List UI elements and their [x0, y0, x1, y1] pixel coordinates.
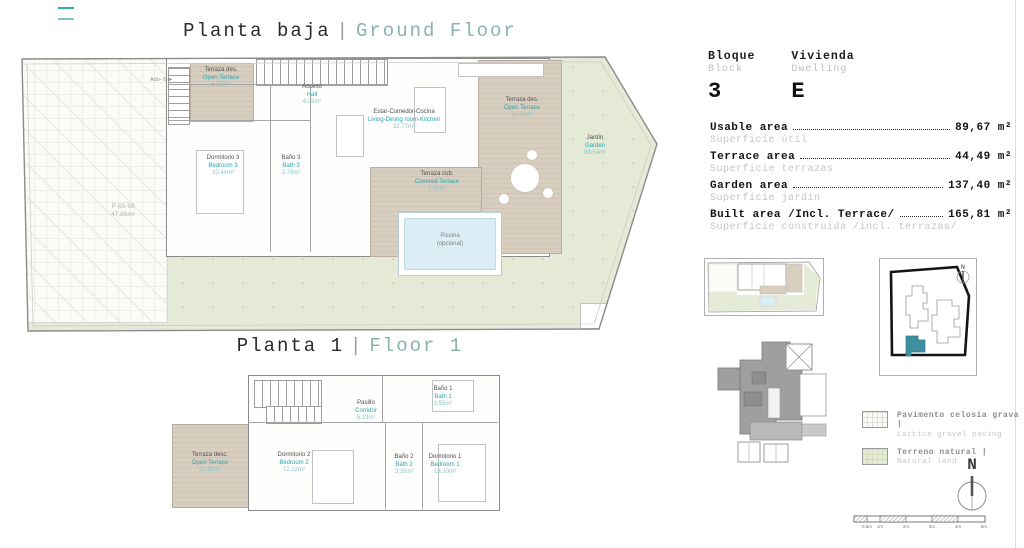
compass-north-label: N — [946, 458, 998, 472]
area-unit: m² — [998, 209, 1012, 221]
title-separator: | — [344, 335, 369, 357]
scale-tick-label: 5m — [981, 524, 988, 529]
scale-tick-label: 0.5m — [862, 524, 872, 529]
room-label-corridor: Pasillo Corridor 5.13m² — [341, 400, 391, 423]
dotted-leader — [793, 129, 950, 130]
floor1-title-en: Floor 1 — [369, 335, 463, 357]
scale-tick-label: 2m — [903, 524, 910, 529]
logo-mark — [58, 7, 74, 20]
vivienda-info: Vivienda Dwelling E — [791, 50, 854, 104]
area-sublabel: Superficie terrazas — [710, 164, 1012, 175]
room-label-terrace-top-left: Terraza des. Open Terrace 5.58m² — [183, 67, 259, 90]
vivienda-value: E — [791, 79, 854, 104]
ground-floor-title-en: Ground Floor — [356, 20, 517, 42]
room-label-garden: Jardín Garden 89.54m² — [570, 135, 620, 158]
room-label-bedroom2: Dormitorio 2 Bedroom 2 12.12m² — [263, 452, 325, 475]
legend: Pavimento celosía grava | Lattice gravel… — [862, 411, 1024, 475]
room-label-bedroom3: Dormitorio 3 Bedroom 3 10.44m² — [186, 155, 260, 178]
vivienda-label-es: Vivienda — [791, 50, 854, 63]
area-sublabel: Superficie jardín — [710, 193, 1012, 204]
pool-label: Piscina (opcional) — [410, 233, 490, 248]
area-label: Garden area — [710, 180, 788, 192]
bloque-info: Bloque Block 3 — [708, 50, 755, 104]
garden-utility-box — [580, 303, 612, 329]
plan-sheet: Planta baja|Ground Floor — [0, 0, 1024, 548]
area-row-usable: Usable area 89,67 m² Superficie útil — [710, 122, 1012, 146]
title-separator: | — [331, 20, 356, 42]
scale-tick-label: 4m — [955, 524, 962, 529]
ground-floor-plan: Ado- 6 ► Terraza des. Open Terrace 5.58m… — [18, 55, 660, 333]
wall-line — [168, 120, 310, 121]
bloque-value: 3 — [708, 79, 755, 104]
floor1-title-es: Planta 1 — [237, 335, 344, 357]
floor1-title: Planta 1|Floor 1 — [160, 335, 540, 357]
room-label-hall: Acceso Hall 4.29m² — [284, 84, 340, 107]
stairs-top — [256, 59, 388, 86]
dotted-leader — [900, 216, 943, 217]
room-label-f1-terrace: Terraza desc. Open Terrace 18.59m² — [176, 452, 244, 475]
area-sublabel: Superficie construida /incl. terrazas/ — [710, 222, 1012, 233]
gravel-swatch-icon — [862, 411, 888, 428]
area-label: Usable area — [710, 122, 788, 134]
terrace-table — [510, 163, 540, 193]
dotted-leader — [800, 158, 950, 159]
floor1-plan: Terraza desc. Open Terrace 18.59m² Pasil… — [170, 372, 502, 512]
scale-tick-label: 1m — [877, 524, 884, 529]
siteplan-thumb — [704, 258, 824, 316]
area-row-garden: Garden area 137,40 m² Superficie jardín — [710, 180, 1012, 204]
key-plan: N — [879, 258, 977, 376]
room-label-covered-terrace: Terraza cub. Covered Terrace 7.48m² — [387, 171, 487, 194]
north-compass-icon: N — [946, 458, 998, 519]
natural-land-swatch-icon — [862, 448, 888, 465]
scale-tick-label: 3m — [929, 524, 936, 529]
access-note: Ado- 6 ► — [150, 77, 173, 83]
area-value: 44,49 — [955, 151, 991, 163]
legend-label-en: Lattice gravel paving — [897, 431, 1024, 439]
unit-info: Bloque Block 3 Vivienda Dwelling E — [708, 50, 855, 104]
legend-item-gravel: Pavimento celosía grava | Lattice gravel… — [862, 411, 1024, 439]
scale-bar: 0.5m 1m 2m 3m 4m 5m — [853, 515, 993, 531]
floor1-stairs-upper — [254, 380, 322, 408]
room-label-bath1: Baño 1 Bath 1 3.55m² — [418, 386, 468, 409]
gravel-paving-area — [22, 57, 168, 323]
area-value: 89,67 — [955, 122, 991, 134]
keyplan-north-label: N — [961, 264, 965, 271]
ground-floor-title-es: Planta baja — [183, 20, 330, 42]
block-plan — [716, 330, 834, 468]
area-value: 137,40 — [948, 180, 991, 192]
legend-item-natural: Terreno natural | Natural land — [862, 448, 1024, 467]
room-label-bath3: Baño 3 Bath 3 3.78m² — [268, 155, 314, 178]
area-sublabel: Superficie útil — [710, 135, 1012, 146]
legend-label-es: Pavimento celosía grava | — [897, 411, 1024, 429]
area-summary: Usable area 89,67 m² Superficie útil Ter… — [710, 122, 1012, 238]
bloque-label-en: Block — [708, 64, 755, 75]
area-label: Terrace area — [710, 151, 795, 163]
area-unit: m² — [998, 151, 1012, 163]
ground-floor-title: Planta baja|Ground Floor — [120, 20, 580, 42]
bloque-label-es: Bloque — [708, 50, 755, 63]
terrace-chair — [542, 187, 554, 199]
room-label-terrace-right: Terraza des. Open Terrace 31.43m² — [484, 97, 560, 120]
area-row-built: Built area /Incl. Terrace/ 165,81 m² Sup… — [710, 209, 1012, 233]
terrace-chair — [526, 149, 538, 161]
area-value: 165,81 — [948, 209, 991, 221]
area-unit: m² — [998, 180, 1012, 192]
terrace-chair — [498, 193, 510, 205]
room-label-living: Estar-Comedor-Cocina Living-Dining room-… — [329, 109, 479, 132]
vivienda-label-en: Dwelling — [791, 64, 854, 75]
ground-floor-parcel: Ado- 6 ► Terraza des. Open Terrace 5.58m… — [18, 55, 660, 333]
parcel-ref-label: P-65-58 47.86m² — [88, 203, 158, 218]
room-label-bedroom1: Dormitorio 1 Bedroom 1 13.20m² — [414, 454, 476, 477]
area-row-terrace: Terrace area 44,49 m² Superficie terraza… — [710, 151, 1012, 175]
dotted-leader — [793, 187, 943, 188]
area-label: Built area /Incl. Terrace/ — [710, 209, 895, 221]
kitchen-counter-furniture — [458, 63, 544, 77]
area-unit: m² — [998, 122, 1012, 134]
